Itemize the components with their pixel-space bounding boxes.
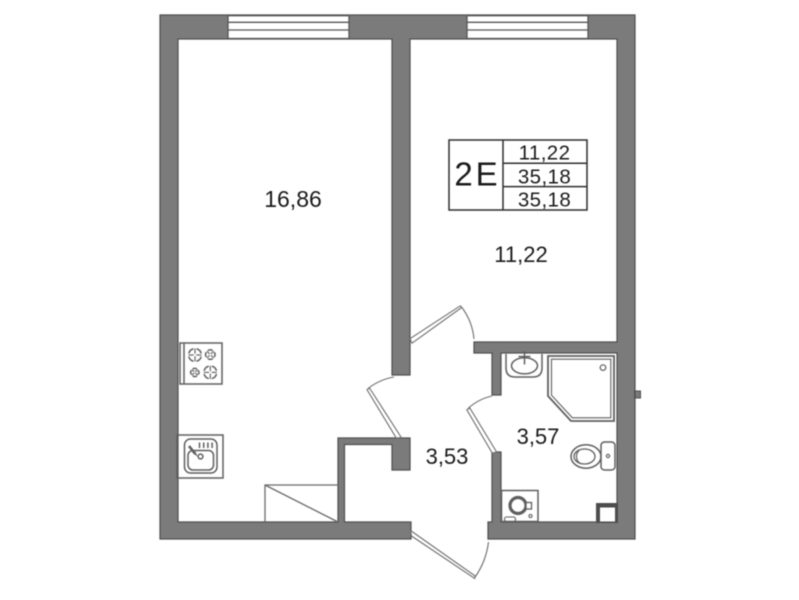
svg-text:3,57: 3,57 (517, 424, 560, 449)
svg-text:11,22: 11,22 (519, 142, 571, 165)
svg-text:2Е: 2Е (454, 156, 500, 193)
svg-text:3,53: 3,53 (426, 444, 469, 469)
svg-text:35,18: 35,18 (518, 189, 571, 212)
svg-text:11,22: 11,22 (494, 242, 547, 267)
svg-text:35,18: 35,18 (518, 166, 571, 189)
svg-text:16,86: 16,86 (264, 186, 322, 212)
